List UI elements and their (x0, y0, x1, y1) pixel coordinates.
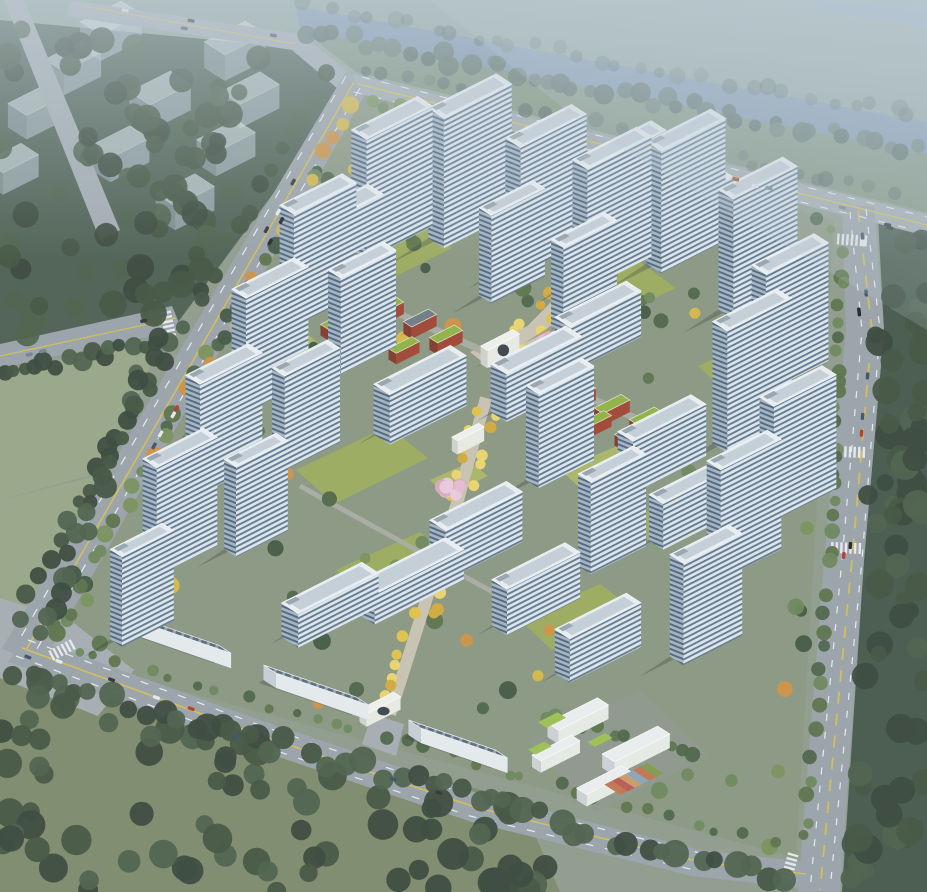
rendering-canvas (0, 0, 927, 892)
layer-atmosphere (0, 0, 927, 892)
haze-veil (0, 0, 927, 892)
aerial-rendering-viewport (0, 0, 927, 892)
